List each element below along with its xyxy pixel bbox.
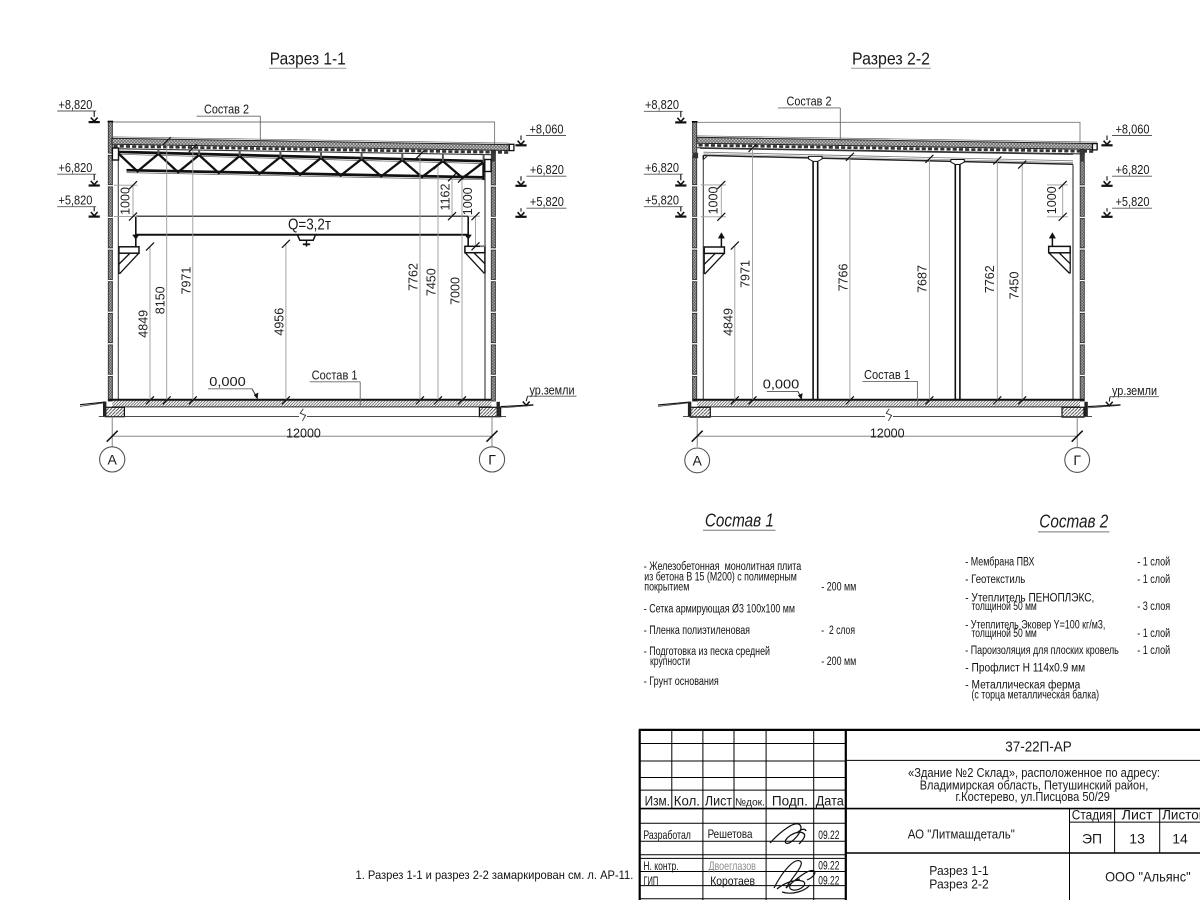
svg-text:7762: 7762 — [406, 263, 420, 291]
svg-text:4956: 4956 — [273, 308, 287, 336]
svg-text:Подп.: Подп. — [772, 793, 808, 808]
svg-text:Решетова: Решетова — [708, 827, 753, 841]
svg-text:+5,820: +5,820 — [1116, 194, 1150, 209]
svg-text:7762: 7762 — [983, 265, 997, 293]
svg-text:толщиной 50 мм: толщиной 50 мм — [972, 601, 1037, 613]
svg-text:+6,820: +6,820 — [1116, 162, 1150, 177]
svg-text:Г: Г — [1073, 452, 1081, 468]
svg-text:4849: 4849 — [137, 310, 151, 338]
svg-text:+5,820: +5,820 — [58, 193, 92, 208]
svg-text:АО "Литмашдеталь": АО "Литмашдеталь" — [908, 828, 1015, 842]
svg-text:+6,820: +6,820 — [645, 160, 679, 175]
svg-text:(с торца металлическая балка): (с торца металлическая балка) — [972, 690, 1100, 702]
svg-text:Разрез 2-2: Разрез 2-2 — [852, 49, 930, 69]
svg-text:+8,820: +8,820 — [645, 97, 679, 112]
svg-text:Коротаев: Коротаев — [710, 874, 755, 888]
svg-text:- Геотекстиль: - Геотекстиль — [965, 574, 1025, 586]
svg-text:12000: 12000 — [286, 426, 321, 440]
svg-text:+5,820: +5,820 — [645, 193, 679, 208]
svg-text:Двоеглазов: Двоеглазов — [709, 859, 756, 873]
svg-text:37-22П-АР: 37-22П-АР — [1005, 740, 1072, 756]
svg-text:Кол.: Кол. — [674, 793, 700, 808]
svg-text:А: А — [108, 451, 118, 467]
svg-text:4849: 4849 — [721, 308, 735, 336]
svg-text:1000: 1000 — [461, 187, 475, 215]
svg-text:8150: 8150 — [154, 286, 168, 314]
svg-text:- 1 слой: - 1 слой — [1137, 574, 1170, 586]
svg-text:Лист: Лист — [705, 793, 732, 808]
svg-text:ур.земли: ур.земли — [1112, 384, 1157, 398]
svg-text:09.22: 09.22 — [818, 876, 839, 888]
svg-text:- Грунт основания: - Грунт основания — [644, 676, 719, 688]
svg-text:14: 14 — [1172, 830, 1188, 846]
svg-text:Разработал: Разработал — [643, 828, 691, 842]
svg-text:Стадия: Стадия — [1072, 808, 1112, 823]
svg-text:7000: 7000 — [448, 277, 462, 305]
svg-text:ур.земли: ур.земли — [530, 383, 575, 397]
svg-text:0,000: 0,000 — [763, 377, 800, 391]
svg-text:1000: 1000 — [118, 187, 132, 215]
svg-text:Н. контр.: Н. контр. — [643, 859, 678, 873]
svg-text:покрытием: покрытием — [644, 581, 689, 593]
svg-text:Состав 1: Состав 1 — [312, 369, 358, 383]
svg-text:Лист: Лист — [1122, 808, 1153, 823]
svg-text:- 200 мм: - 200 мм — [821, 581, 856, 593]
svg-text:Q=3,2т: Q=3,2т — [288, 217, 331, 234]
svg-text:Состав 2: Состав 2 — [204, 102, 249, 116]
svg-text:7450: 7450 — [424, 268, 438, 296]
svg-text:- 2 слоя: - 2 слоя — [821, 625, 855, 637]
svg-text:толщиной 50 мм: толщиной 50 мм — [972, 628, 1037, 640]
svg-text:г.Костерево, ул.Писцова 50/29: г.Костерево, ул.Писцова 50/29 — [955, 790, 1110, 804]
svg-text:Состав 2: Состав 2 — [1039, 512, 1108, 532]
svg-text:09.22: 09.22 — [818, 861, 839, 873]
svg-text:1000: 1000 — [1045, 186, 1059, 214]
svg-text:А: А — [693, 452, 703, 468]
svg-text:1000: 1000 — [707, 187, 721, 215]
svg-text:7971: 7971 — [179, 267, 193, 295]
svg-text:Состав 1: Состав 1 — [864, 368, 910, 382]
svg-text:крупности: крупности — [650, 656, 690, 668]
svg-text:0,000: 0,000 — [209, 375, 246, 389]
svg-text:Г: Г — [488, 451, 496, 467]
svg-text:7766: 7766 — [836, 264, 850, 292]
svg-text:- Пленка полиэтиленовая: - Пленка полиэтиленовая — [644, 625, 750, 637]
svg-text:ООО "Альянс": ООО "Альянс" — [1105, 869, 1191, 885]
svg-text:13: 13 — [1129, 830, 1145, 846]
svg-text:09.22: 09.22 — [818, 830, 839, 842]
svg-text:Листов: Листов — [1162, 808, 1200, 823]
svg-text:12000: 12000 — [870, 426, 905, 440]
svg-text:1162: 1162 — [438, 184, 452, 211]
svg-text:- 3 слоя: - 3 слоя — [1137, 601, 1170, 613]
svg-text:ЭП: ЭП — [1082, 830, 1102, 846]
svg-text:ГИП: ГИП — [643, 874, 658, 888]
svg-text:- 1 слой: - 1 слой — [1137, 645, 1170, 657]
svg-text:+8,060: +8,060 — [530, 121, 564, 136]
svg-text:- Сетка армирующая Ø3 100х100: - Сетка армирующая Ø3 100х100 мм — [644, 604, 795, 616]
svg-text:7971: 7971 — [739, 260, 753, 288]
svg-text:№док.: №док. — [735, 797, 765, 809]
svg-text:Состав 1: Состав 1 — [705, 510, 774, 530]
svg-text:Изм.: Изм. — [645, 793, 670, 808]
svg-text:- 1 слой: - 1 слой — [1137, 628, 1170, 640]
svg-text:Дата: Дата — [816, 793, 845, 808]
svg-text:Состав 2: Состав 2 — [787, 94, 832, 108]
svg-text:7687: 7687 — [916, 265, 930, 293]
svg-text:7450: 7450 — [1008, 272, 1022, 300]
svg-text:- 1 слой: - 1 слой — [1137, 556, 1170, 568]
svg-text:Разрез 2-2: Разрез 2-2 — [929, 877, 988, 891]
svg-text:+6,820: +6,820 — [530, 162, 564, 177]
svg-text:Разрез 1-1: Разрез 1-1 — [929, 864, 988, 878]
svg-text:- Мембрана ПВХ: - Мембрана ПВХ — [965, 556, 1034, 568]
svg-text:+8,820: +8,820 — [58, 97, 92, 112]
svg-text:1. Разрез 1-1 и разрез 2-2 зам: 1. Разрез 1-1 и разрез 2-2 замаркирован … — [356, 868, 634, 882]
svg-text:+6,820: +6,820 — [58, 160, 92, 175]
svg-text:- Профлист Н 114х0.9 мм: - Профлист Н 114х0.9 мм — [965, 663, 1085, 675]
svg-text:- 200 мм: - 200 мм — [821, 656, 856, 668]
svg-text:+8,060: +8,060 — [1116, 121, 1150, 136]
svg-text:Разрез 1-1: Разрез 1-1 — [270, 49, 346, 69]
svg-text:- Пароизоляция для плоских кро: - Пароизоляция для плоских кровель — [965, 645, 1119, 657]
svg-text:+5,820: +5,820 — [530, 194, 564, 209]
